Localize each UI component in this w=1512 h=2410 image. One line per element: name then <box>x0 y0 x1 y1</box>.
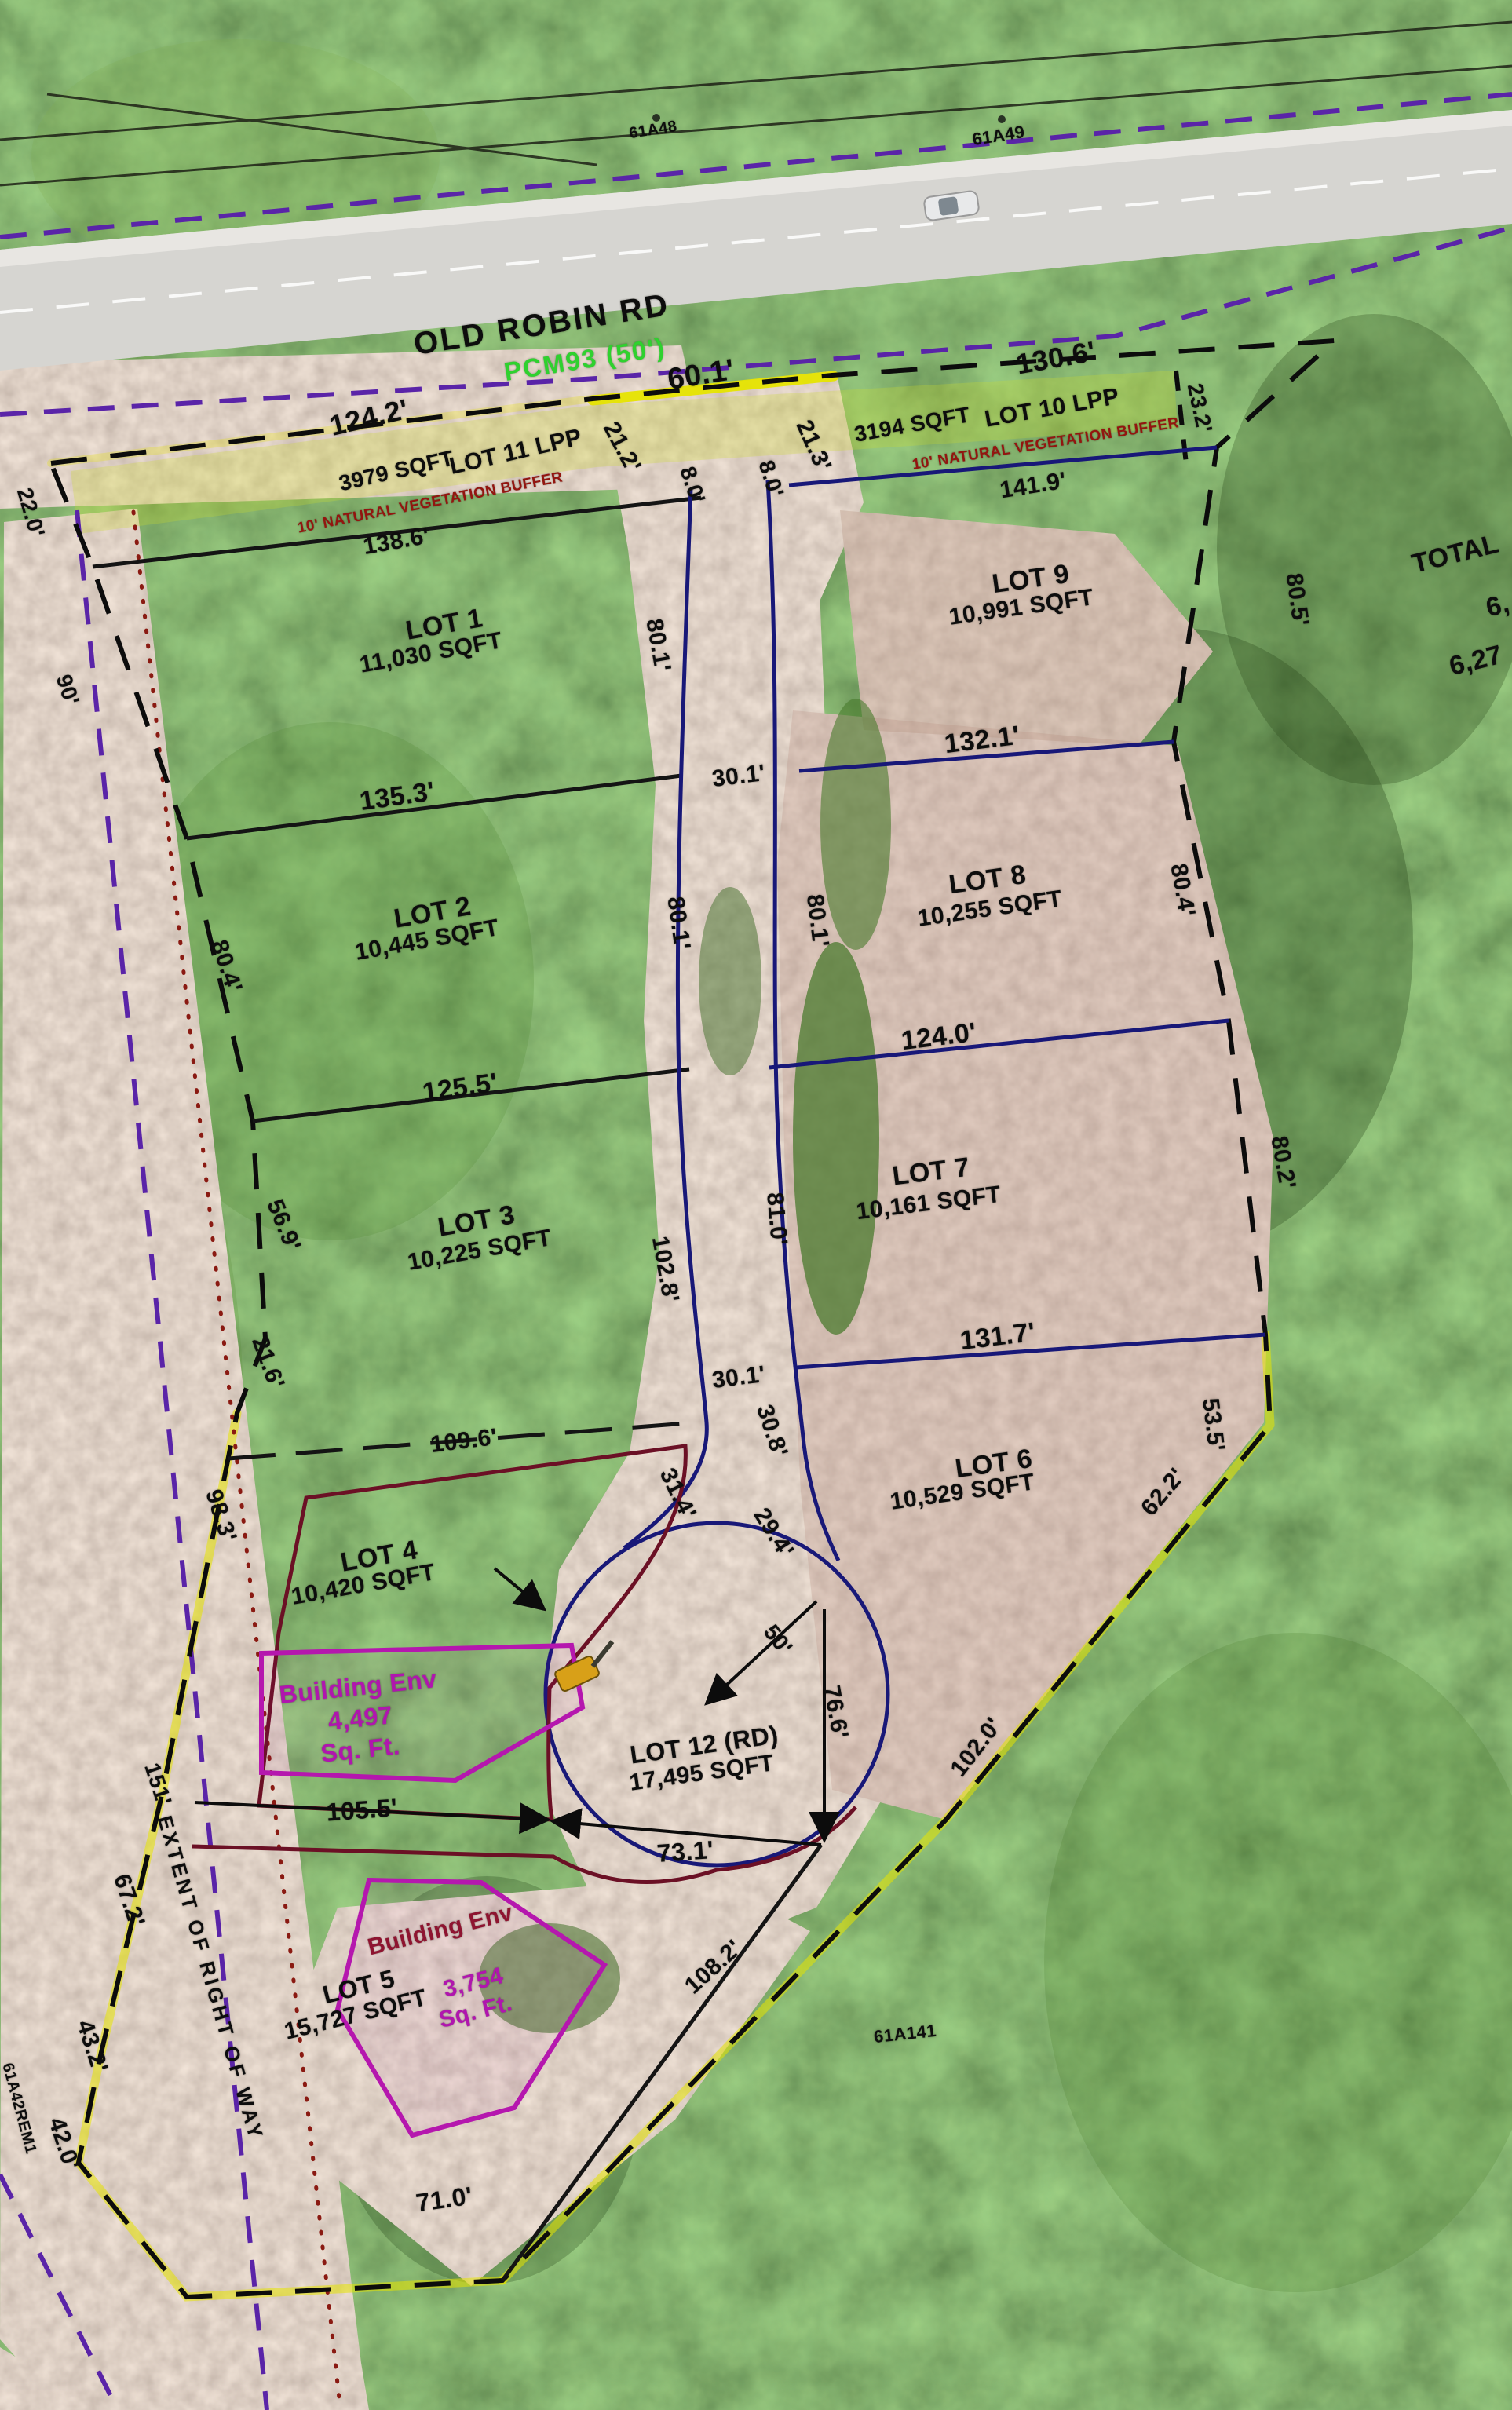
map-graphics <box>0 0 1512 2410</box>
aerial-survey-map: 61A4861A49OLD ROBIN RDPCM93 (50')60.1'12… <box>0 0 1512 2410</box>
